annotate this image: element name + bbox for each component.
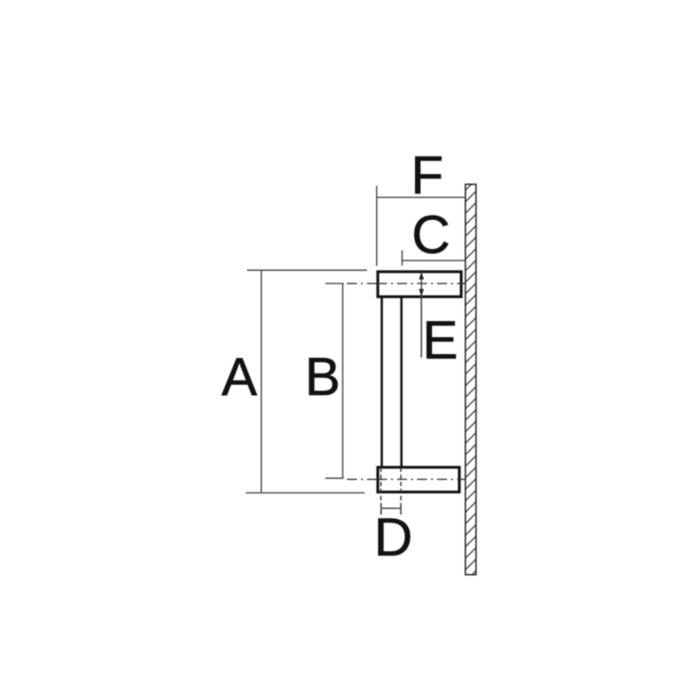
svg-text:F: F — [411, 147, 444, 206]
svg-text:D: D — [374, 509, 413, 568]
svg-text:E: E — [422, 311, 458, 370]
svg-text:A: A — [221, 349, 257, 408]
svg-text:C: C — [412, 206, 451, 265]
svg-text:B: B — [305, 348, 341, 407]
